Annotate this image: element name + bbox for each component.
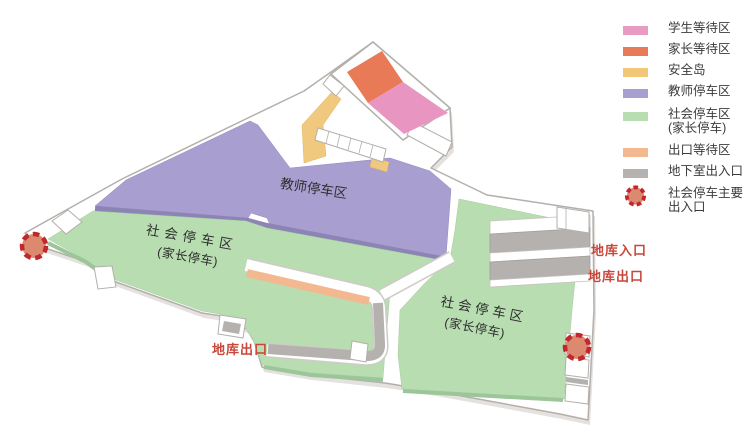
structure-bottom-right-box-1 xyxy=(565,357,589,378)
structure-top-right-box xyxy=(557,207,589,233)
legend-swatch-student-wait xyxy=(623,26,648,35)
legend-swatch-safety-island xyxy=(623,68,648,77)
legend-item-parent-wait: 家长等待区 xyxy=(623,43,731,57)
legend-item-student-wait: 学生等待区 xyxy=(623,22,731,36)
legend-item-basement-access: 地下室出入口 xyxy=(623,165,743,179)
legend-swatch-teacher-parking xyxy=(623,89,648,98)
legend-main-entrance-line2: 出入口 xyxy=(668,201,743,215)
structure-bottom-right-box-2 xyxy=(565,384,589,404)
legend-item-teacher-parking: 教师停车区 xyxy=(623,85,731,99)
legend-swatch-basement-access xyxy=(623,169,648,178)
legend-main-entrance-line1: 社会停车主要 xyxy=(668,187,743,201)
main-entrance-icon-right xyxy=(565,335,589,359)
legend-item-main-entrance: 社会停车主要 出入口 xyxy=(623,187,743,214)
legend-swatch-exit-wait xyxy=(623,148,648,157)
legend-swatch-parent-wait xyxy=(623,47,648,56)
legend-swatch-public-parking xyxy=(623,112,648,121)
legend-item-public-parking: 社会停车区 (家长停车) xyxy=(623,108,731,135)
main-entrance-legend-icon xyxy=(623,183,648,209)
legend-item-exit-wait: 出口等待区 xyxy=(623,144,731,158)
legend-public-parking-line2: (家长停车) xyxy=(668,122,731,136)
structure-curve-box xyxy=(350,341,368,362)
parking-site-plan: 教师停车区 社会停车区 (家长停车) 社会停车区 (家长停车) 地库入口 地库出… xyxy=(0,0,750,441)
garage-exit-label-bottom: 地库出口 xyxy=(212,342,268,357)
legend-public-parking-line1: 社会停车区 xyxy=(668,108,731,122)
main-entrance-icon-left xyxy=(22,234,46,258)
legend-item-safety-island: 安全岛 xyxy=(623,64,706,78)
structure-notch-box-1 xyxy=(94,266,116,289)
garage-entrance-label: 地库入口 xyxy=(591,243,647,258)
garage-exit-label-right: 地库出口 xyxy=(588,269,644,284)
